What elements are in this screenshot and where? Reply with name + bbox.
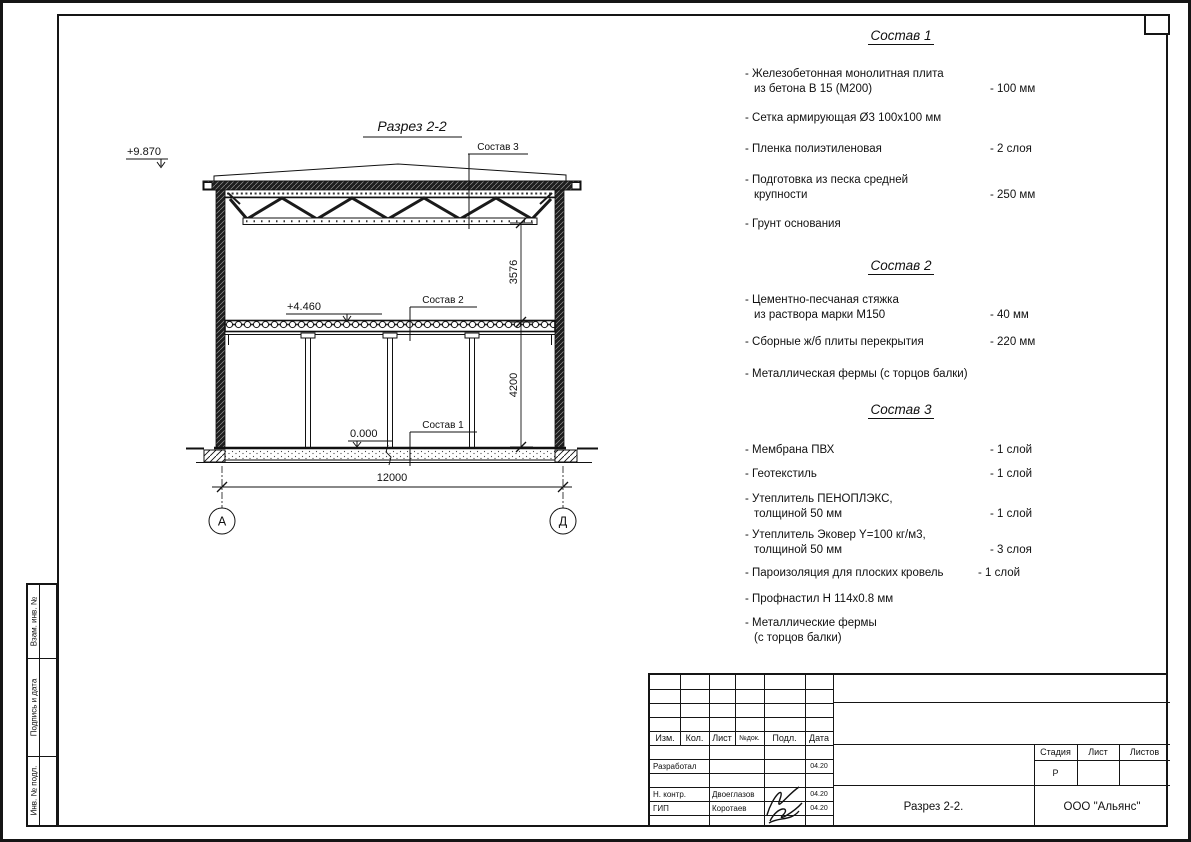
tb-date-razrabotal: 04.20 [805,759,833,773]
grid-line [833,702,1170,703]
tb-role-nkontr: Н. контр. [650,787,712,801]
strip-cell-podpis: Подпись и дата [28,658,39,756]
tb-stage-value: Р [1034,760,1077,785]
tb-header-list: Лист [709,731,735,745]
tb-sheet-label: Лист [1077,744,1119,760]
tb-company: ООО "Альянс" [1034,785,1170,829]
tb-role-razrabotal: Разработал [650,759,712,773]
list-item: - Утеплитель ПЕНОПЛЭКС,толщиной 50 мм - … [745,492,1057,522]
top-right-stamp-box [1144,14,1170,35]
list-item: - Пароизоляция для плоских кровель - 1 с… [745,566,1057,581]
list-item: - Профнастил Н 114x0.8 мм [745,592,1057,607]
tb-header-izm: Изм. [650,731,680,745]
tb-date-gip: 04.20 [805,801,833,815]
section-title: Разрез 2-2 [377,118,447,134]
axis-marker-left: А [209,508,235,534]
vertical-dimensions: 3576 4200 [508,218,533,452]
list-item: - Сетка армирующая Ø3 100x100 мм [745,111,1057,126]
tb-date-nkontr: 04.20 [805,787,833,801]
list-item: - Геотекстиль - 1 слой [745,467,1057,482]
span-dimension: 12000 [212,466,572,508]
roof-outline [203,164,581,197]
list-item: - Мембрана ПВХ - 1 слой [745,443,1057,458]
strip-cell-vzam: Взам. инв. № [28,585,39,658]
elevation-zero-mark: 0.000 [348,428,392,447]
composition-list-3: Состав 3 - Мембрана ПВХ - 1 слой - Геоте… [745,402,1057,646]
composition-list-2: Состав 2 - Цементно-песчаная стяжкаиз ра… [745,258,1057,382]
elevation-floor-label: +4.460 [287,301,321,313]
tb-role-gip: ГИП [650,801,712,815]
tb-name-nkontr: Двоеглазов [709,787,767,801]
elevation-floor-mark: +4.460 [286,301,382,322]
list-item: - Металлические фермы(с торцов балки) [745,616,1057,646]
tb-sheets-label: Листов [1119,744,1170,760]
tb-header-ndok: №док. [735,731,764,745]
elevation-roof-label: +9.870 [127,146,161,158]
list-item: - Железобетонная монолитная плитаиз бето… [745,67,1057,97]
axis-left-label: А [218,515,227,529]
tb-stage-label: Стадия [1034,744,1077,760]
leader-sostav2-label: Состав 2 [422,295,464,306]
roof-truss [225,193,555,225]
dim-floor-height: 4200 [508,373,520,397]
axis-right-label: Д [559,515,568,529]
section-view-drawing: Разрез 2-2 [90,110,710,560]
tb-header-kol: Кол. [680,731,709,745]
elevation-zero-label: 0.000 [350,428,378,440]
leader-sostav3-label: Состав 3 [477,142,519,153]
list-item: - Сборные ж/б плиты перекрытия - 220 мм [745,335,1057,350]
grid-line [39,585,40,825]
list-item: - Грунт основания [745,217,1057,232]
leader-sostav1-label: Состав 1 [422,420,464,431]
strip-cell-inv: Инв. № подл. [28,756,39,825]
composition-1-heading: Состав 1 [745,28,1057,43]
list-item: - Подготовка из песка среднейкрупности -… [745,173,1057,203]
composition-2-heading: Состав 2 [745,258,1057,273]
tb-header-data: Дата [805,731,833,745]
list-item: - Пленка полиэтиленовая - 2 слоя [745,142,1057,157]
axis-marker-right: Д [550,508,576,534]
list-item: - Цементно-песчаная стяжкаиз раствора ма… [745,293,1057,323]
composition-list-1: Состав 1 - Железобетонная монолитная пли… [745,28,1057,232]
list-item: - Металлическая фермы (с торцов балки) [745,367,1057,382]
tb-doc-title: Разрез 2-2. [833,785,1034,829]
title-block: Изм. Кол. Лист №док. Подл. Дата Разработ… [648,673,1168,827]
tb-name-gip: Коротаев [709,801,767,815]
elevation-roof-mark: +9.870 [126,146,168,168]
composition-3-heading: Состав 3 [745,402,1057,417]
dim-span: 12000 [377,472,408,484]
dim-truss-height: 3576 [508,260,520,284]
list-item: - Утеплитель Эковер Y=100 кг/м3,толщиной… [745,528,1057,558]
signature-scribble [763,777,807,825]
drawing-sheet: Разрез 2-2 [0,0,1191,842]
left-attribute-strip: Взам. инв. № Подпись и дата Инв. № подл. [26,583,58,827]
tb-header-podp: Подл. [764,731,805,745]
ground-slab [186,445,598,465]
